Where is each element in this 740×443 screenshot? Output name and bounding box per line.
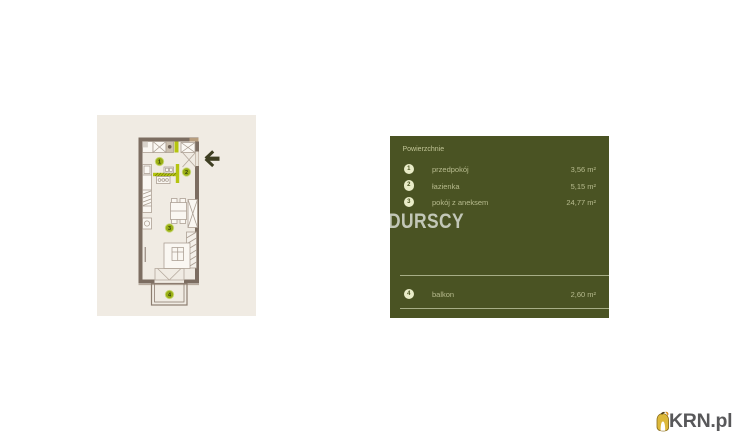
svg-text:1: 1 — [158, 160, 161, 166]
svg-text:2: 2 — [185, 170, 188, 176]
svg-text:3: 3 — [168, 226, 171, 232]
